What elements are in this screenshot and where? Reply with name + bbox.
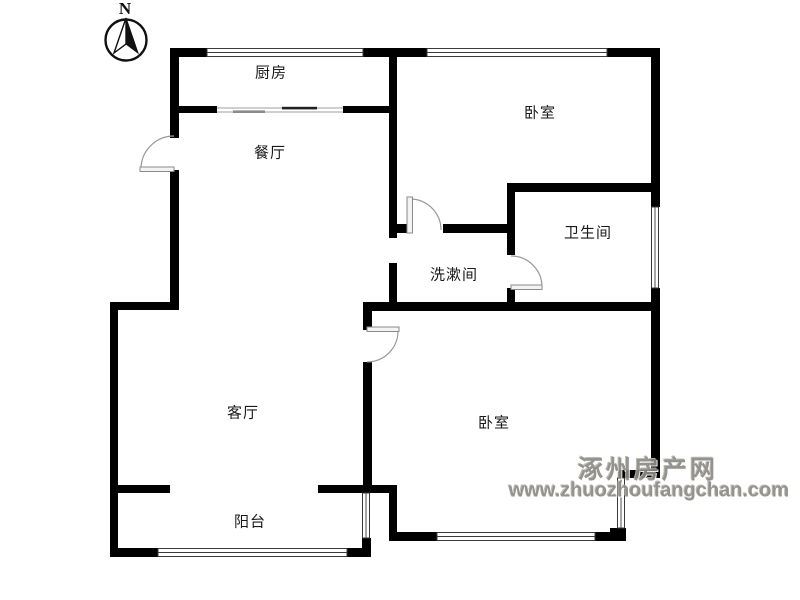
wall-segment bbox=[618, 470, 660, 478]
wall-segment bbox=[343, 106, 397, 113]
room-label-dining-room: 餐厅 bbox=[254, 142, 286, 163]
room-label-bedroom-north: 卧室 bbox=[524, 102, 556, 123]
room-label-kitchen: 厨房 bbox=[255, 62, 287, 83]
wall-segment bbox=[363, 302, 372, 330]
walls bbox=[110, 48, 660, 557]
room-label-bedroom-south: 卧室 bbox=[478, 412, 510, 433]
wall-segment bbox=[170, 170, 179, 302]
sliding-panel bbox=[282, 107, 317, 110]
wall-segment bbox=[318, 485, 397, 493]
wall-segment bbox=[507, 183, 515, 255]
kitchen-window bbox=[207, 49, 363, 57]
bedroom-north-window bbox=[427, 49, 607, 57]
wall-segment bbox=[443, 224, 515, 233]
doors bbox=[140, 136, 542, 362]
wall-segment bbox=[110, 302, 118, 557]
wall-segment bbox=[389, 50, 397, 238]
wall-segment bbox=[651, 288, 660, 470]
room-label-bathroom: 卫生间 bbox=[564, 222, 612, 243]
wall-segment bbox=[595, 532, 626, 541]
wall-segment bbox=[389, 224, 407, 233]
washroom-door bbox=[407, 197, 441, 233]
balcony-side-window bbox=[363, 493, 370, 538]
wall-segment bbox=[110, 485, 170, 493]
wall-segment bbox=[363, 362, 372, 493]
entry-door bbox=[140, 136, 174, 172]
wall-segment bbox=[170, 106, 217, 113]
floor-plan: N 厨房 餐厅 卧室 卫生间 洗漱间 客厅 卧室 阳台 涿州房产网 www.zh… bbox=[0, 0, 800, 600]
bedroom-south-window bbox=[437, 533, 595, 541]
wall-segment bbox=[170, 48, 179, 138]
bathroom-door bbox=[511, 256, 542, 290]
wall-segment bbox=[363, 302, 660, 311]
wall-segment bbox=[110, 302, 179, 310]
room-label-washroom: 洗漱间 bbox=[430, 264, 478, 285]
room-label-living-room: 客厅 bbox=[227, 402, 259, 423]
wall-segment bbox=[362, 538, 371, 557]
bathroom-window bbox=[652, 207, 659, 288]
bedroom-south-door bbox=[367, 327, 399, 362]
kitchen-pass-opening bbox=[217, 107, 343, 113]
balcony-window bbox=[158, 549, 347, 557]
compass-north-label: N bbox=[119, 0, 131, 19]
wall-segment bbox=[389, 493, 397, 541]
wall-segment bbox=[110, 548, 158, 557]
north-compass bbox=[106, 18, 147, 61]
sliding-panel bbox=[233, 110, 265, 113]
bedroom-corner-window bbox=[618, 478, 625, 528]
room-label-balcony: 阳台 bbox=[234, 511, 266, 532]
floor-plan-drawing bbox=[0, 0, 800, 600]
wall-segment bbox=[390, 532, 437, 541]
wall-segment bbox=[507, 183, 660, 192]
